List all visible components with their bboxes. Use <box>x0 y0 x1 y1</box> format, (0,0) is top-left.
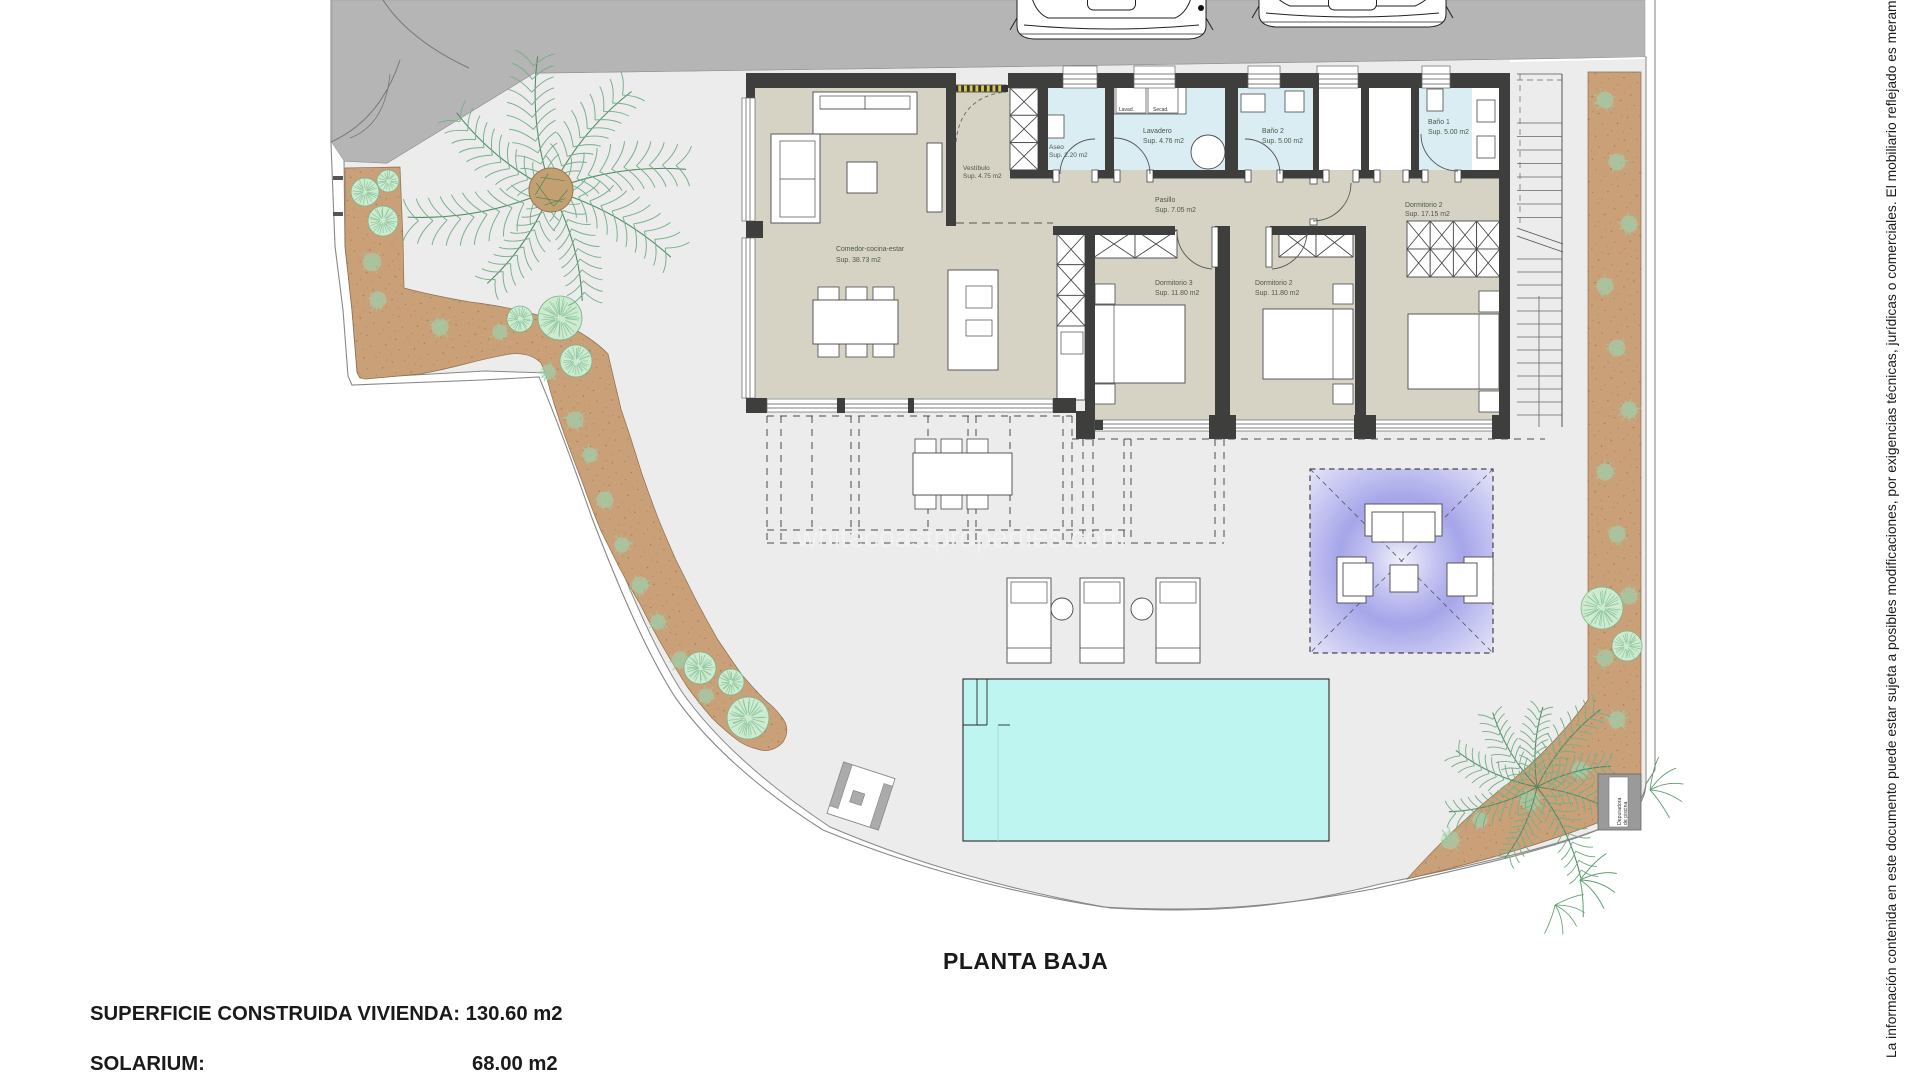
svg-text:Aseo: Aseo <box>1049 144 1064 151</box>
svg-text:Sup. 5.00 m2: Sup. 5.00 m2 <box>1262 138 1303 145</box>
svg-text:68.00 m2: 68.00 m2 <box>472 1053 558 1075</box>
svg-text:Baño 1: Baño 1 <box>1428 119 1450 126</box>
svg-text:Dormitorio 2: Dormitorio 2 <box>1405 202 1443 209</box>
svg-text:Sup. 11.80 m2: Sup. 11.80 m2 <box>1155 290 1199 297</box>
svg-text:SOLARIUM:: SOLARIUM: <box>90 1053 205 1075</box>
svg-text:Pasillo: Pasillo <box>1155 197 1175 204</box>
svg-text:Baño 2: Baño 2 <box>1262 128 1284 135</box>
svg-text:Sup. 38.73 m2: Sup. 38.73 m2 <box>836 257 881 264</box>
svg-text:Sup. 17.15 m2: Sup. 17.15 m2 <box>1405 211 1450 218</box>
svg-text:Sup. 2.20 m2: Sup. 2.20 m2 <box>1049 152 1088 159</box>
svg-text:whitecoastproperties.com: whitecoastproperties.com <box>796 522 1126 554</box>
svg-text:PLANTA BAJA: PLANTA BAJA <box>943 948 1108 974</box>
svg-text:Dormitorio 3: Dormitorio 3 <box>1155 280 1193 287</box>
svg-text:Dormitorio 2: Dormitorio 2 <box>1255 280 1293 287</box>
svg-text:Sup. 11.80 m2: Sup. 11.80 m2 <box>1255 290 1299 297</box>
svg-text:Sup. 4.75 m2: Sup. 4.75 m2 <box>963 173 1002 180</box>
svg-text:Vestíbulo: Vestíbulo <box>963 165 990 172</box>
svg-text:Lavadero: Lavadero <box>1143 128 1172 135</box>
svg-text:SUPERFICIE CONSTRUIDA VIVIENDA: SUPERFICIE CONSTRUIDA VIVIENDA: 130.60 m… <box>90 1003 563 1025</box>
svg-text:Secad.: Secad. <box>1153 107 1169 113</box>
svg-text:Sup. 5.00 m2: Sup. 5.00 m2 <box>1428 129 1469 136</box>
svg-text:Lavad.: Lavad. <box>1119 107 1134 113</box>
svg-text:de piscina: de piscina <box>1623 802 1629 825</box>
svg-text:Sup. 4.76 m2: Sup. 4.76 m2 <box>1143 138 1184 145</box>
svg-text:Sup. 7.05 m2: Sup. 7.05 m2 <box>1155 207 1196 214</box>
svg-text:Comedor-cocina-estar: Comedor-cocina-estar <box>836 246 905 253</box>
svg-text:La información contenida en es: La información contenida en este documen… <box>1884 0 1899 1058</box>
